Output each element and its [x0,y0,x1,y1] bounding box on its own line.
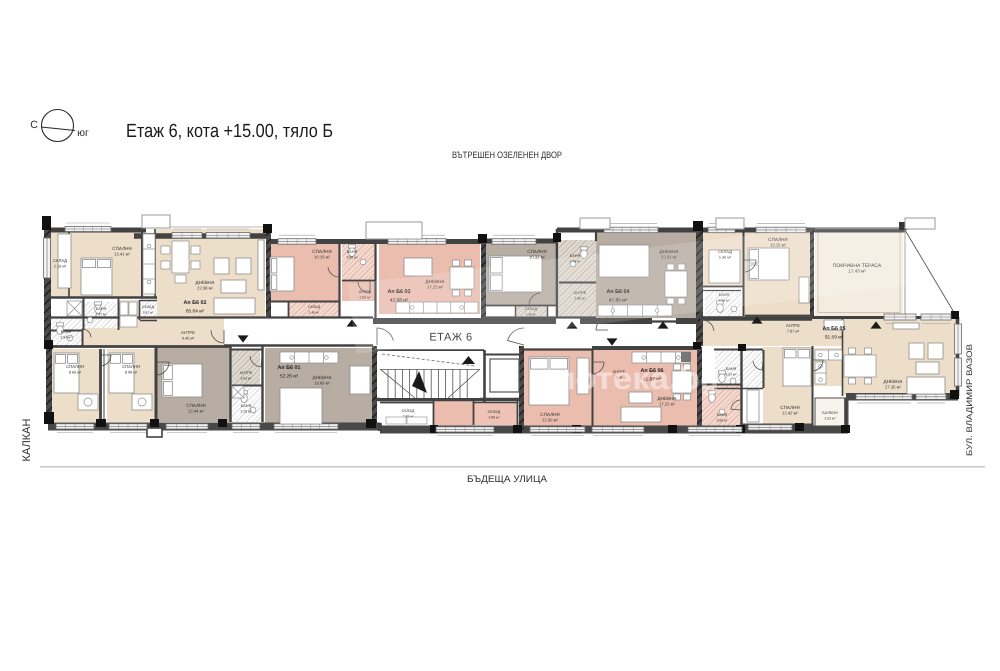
svg-text:СКЛАД: СКЛАД [308,305,321,309]
svg-text:БАЛКОН: БАЛКОН [822,411,838,415]
svg-text:Ап Б6 01: Ап Б6 01 [277,365,300,371]
svg-text:БАНЯ: БАНЯ [96,307,107,311]
svg-text:ДНЕВНА: ДНЕВНА [658,396,678,401]
svg-text:СКЛАД: СКЛАД [142,305,155,309]
svg-text:12.44 м²: 12.44 м² [188,409,205,414]
svg-text:52.26 м²: 52.26 м² [280,374,299,380]
svg-text:7.87 м²: 7.87 м² [787,330,800,334]
svg-text:мотека.b: мотека.b [550,361,700,396]
svg-text:19.69 м²: 19.69 м² [314,381,331,386]
svg-text:СПАЛНЯ: СПАЛНЯ [527,249,546,254]
svg-text:3.08 м²: 3.08 м² [346,256,358,260]
svg-text:СПАЛНЯ: СПАЛНЯ [122,364,140,369]
svg-text:КАЛКАН: КАЛКАН [21,419,33,462]
svg-text:Ап Б6 05: Ап Б6 05 [822,326,845,332]
svg-text:85.64 м²: 85.64 м² [186,309,205,315]
svg-text:g: g [700,361,719,396]
svg-text:17.22 м²: 17.22 м² [659,402,676,407]
svg-text:СПАЛНЯ: СПАЛНЯ [112,246,131,251]
svg-text:АНТРЕ: АНТРЕ [786,323,800,328]
svg-text:БАНЯ: БАНЯ [726,367,737,371]
svg-text:2.10 м²: 2.10 м² [54,265,67,269]
svg-text:2.47 м²: 2.47 м² [95,313,107,317]
svg-text:СПАЛНЯ: СПАЛНЯ [312,249,331,254]
svg-text:12.00 м²: 12.00 м² [542,418,559,423]
svg-text:СКЛАД: СКЛАД [53,258,67,263]
svg-text:13.41 м²: 13.41 м² [114,252,131,257]
svg-text:1.46 м²: 1.46 м² [309,311,319,315]
svg-text:СПАЛНЯ: СПАЛНЯ [540,412,559,417]
svg-text:СПАЛНЯ: СПАЛНЯ [66,364,84,369]
svg-text:8.98 м²: 8.98 м² [125,371,138,375]
svg-text:С: С [30,119,38,131]
svg-text:Етаж 6, кота +15.00, тяло Б: Етаж 6, кота +15.00, тяло Б [126,121,333,142]
svg-text:БЪДЕЩА УЛИЦА: БЪДЕЩА УЛИЦА [467,474,548,485]
svg-text:БАНЯ: БАНЯ [347,250,358,254]
svg-text:ДНЕВНА: ДНЕВНА [313,375,333,380]
svg-text:ДНЕВНА: ДНЕВНА [196,280,216,285]
svg-text:3.03 м²: 3.03 м² [240,377,252,381]
svg-text:ДНЕВНА: ДНЕВНА [884,379,904,384]
svg-text:2.88 м²: 2.88 м² [488,416,500,420]
svg-text:12.42 м²: 12.42 м² [782,411,799,416]
svg-text:СКЛАД: СКЛАД [488,410,501,414]
svg-text:Ап Б6 02: Ап Б6 02 [183,300,206,306]
svg-text:юг: юг [77,127,89,139]
svg-text:АНТРЕ: АНТРЕ [240,371,253,375]
svg-text:3.51 м²: 3.51 м² [725,373,737,377]
svg-text:27.35 м²: 27.35 м² [885,385,902,390]
svg-text:9.40 м²: 9.40 м² [182,337,195,341]
svg-text:БУЛ. ВЛАДИМИР ВАЗОВ: БУЛ. ВЛАДИМИР ВАЗОВ [965,344,974,456]
svg-text:СКЛАД: СКЛАД [402,409,415,413]
svg-text:2.55 м²: 2.55 м² [824,417,836,421]
svg-text:22.98 м²: 22.98 м² [197,286,214,291]
svg-text:СПАЛНЯ: СПАЛНЯ [186,403,205,408]
svg-text:БАНЯ: БАНЯ [717,413,728,417]
svg-text:АНТРЕ: АНТРЕ [181,330,195,335]
svg-text:ВЪТРЕШЕН ОЗЕЛЕНЕН ДВОР: ВЪТРЕШЕН ОЗЕЛЕНЕН ДВОР [452,150,562,160]
svg-text:8.66 м²: 8.66 м² [69,371,82,375]
svg-text:СПАЛНЯ: СПАЛНЯ [780,405,799,410]
svg-text:2.94 м²: 2.94 м² [60,336,72,340]
svg-text:3.10 м²: 3.10 м² [240,410,252,414]
svg-text:10.33 м²: 10.33 м² [529,255,546,260]
svg-text:БАНЯ: БАНЯ [241,404,252,408]
svg-text:10.15 м²: 10.15 м² [314,255,331,260]
svg-text:3.08 м²: 3.08 м² [716,419,728,423]
svg-text:0.61 м²: 0.61 м² [143,311,153,315]
svg-text:БАНЯ: БАНЯ [61,330,72,334]
svg-text:91.59 м²: 91.59 м² [825,335,844,341]
